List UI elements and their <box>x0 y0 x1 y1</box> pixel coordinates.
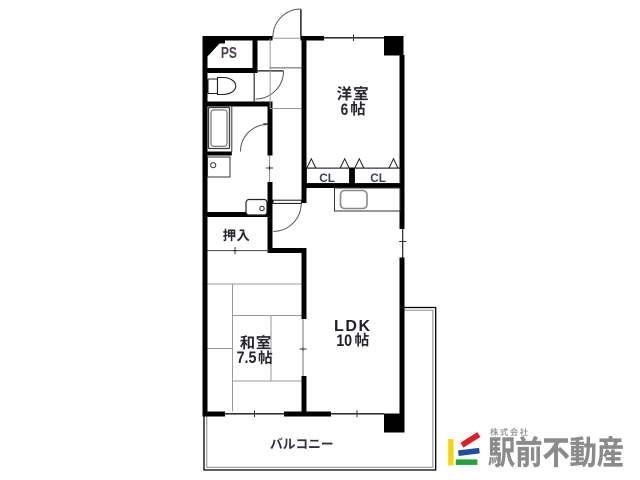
svg-text:6: 6 <box>341 100 349 119</box>
svg-text:PS: PS <box>221 45 237 62</box>
svg-text:10: 10 <box>336 331 352 350</box>
svg-text:CL: CL <box>319 172 335 185</box>
svg-text:7.5: 7.5 <box>237 348 257 367</box>
svg-text:CL: CL <box>370 172 386 185</box>
